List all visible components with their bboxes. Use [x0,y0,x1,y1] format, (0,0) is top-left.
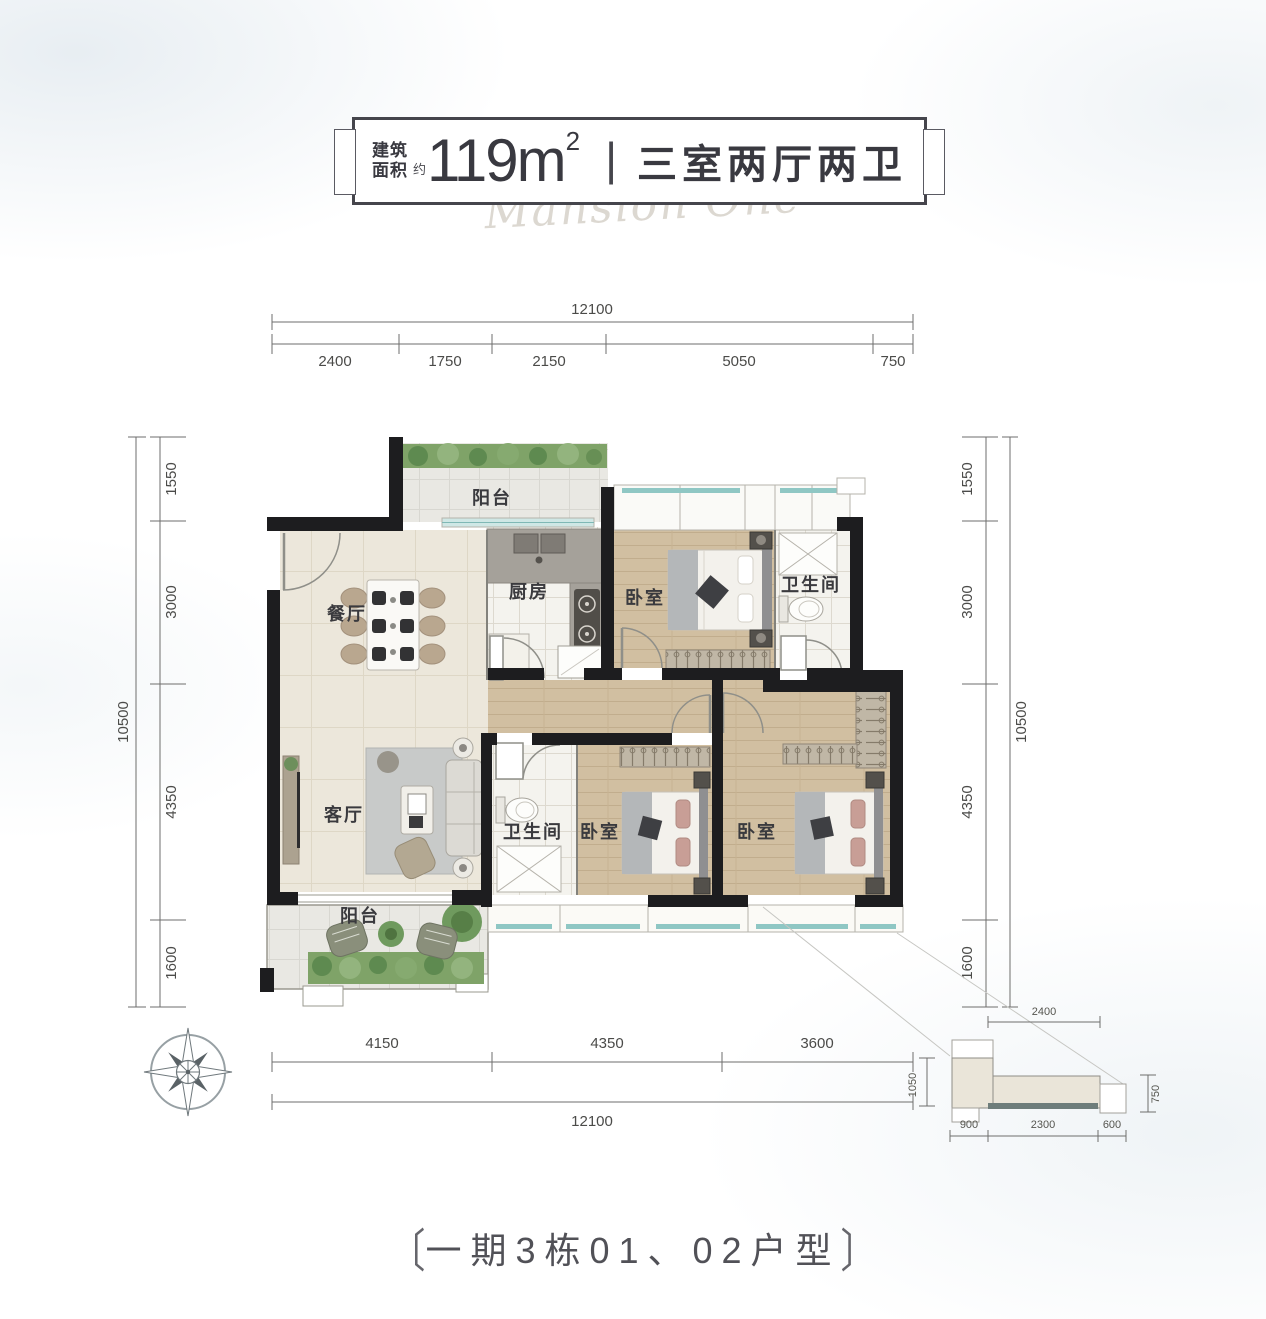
compass-icon [144,1028,232,1116]
wardrobe-icon [856,684,886,768]
dim-right-seg1: 3000 [959,585,976,618]
nightstand-icon [694,772,710,788]
hallway-floor [488,680,712,733]
dim-right-seg2: 4350 [959,785,976,818]
room-label-kitchen: 厨房 [509,581,549,602]
dim-top-total: 12100 [571,301,613,318]
dim-bottom [272,1052,935,1110]
leader-lines [763,907,1126,1086]
title-divider: | [605,132,617,186]
area-exponent: 2 [566,126,580,157]
toilet-icon [496,797,505,823]
room-label-bedroom-mid: 卧室 [580,821,620,842]
wardrobe-icon [783,744,857,764]
bath-door-leaf [781,636,806,670]
area-label: 建筑 面积 [372,141,408,180]
dim-right-seg3: 1600 [959,946,976,979]
window-glass [780,488,842,493]
dim-left-seg3: 1600 [163,946,180,979]
window-glass [860,924,896,929]
area-block: 建筑 面积 约 119m 2 [372,131,579,191]
caption-bracket-right: 〕 [841,1215,877,1282]
detail-slab [952,1058,993,1108]
sofa-icon [446,760,482,856]
dim-left-seg1: 3000 [163,585,180,618]
window-glass [496,924,552,929]
plan-caption: 〔一期3栋01、02户型〕 [0,1222,1266,1274]
dim-left-seg0: 1550 [163,462,180,495]
dim-left [128,437,186,1007]
floorplan-page: 建筑 面积 约 119m 2 | 三室两厅两卫 Mansion One [0,0,1266,1319]
dim-top [272,314,913,354]
room-label-bedroom-top: 卧室 [625,587,665,608]
dim-detail-top: 2400 [1032,1006,1056,1018]
area-label-line2: 面积 [372,161,408,181]
room-label-bedroom-right: 卧室 [737,821,777,842]
dim-detail-right: 750 [1150,1085,1162,1103]
area-label-line1: 建筑 [372,141,408,161]
dim-bottom-seg1: 4350 [590,1035,623,1052]
dim-bottom-seg0: 4150 [365,1035,398,1052]
room-label-balcony-bottom: 阳台 [340,905,380,926]
nightstand-icon [866,878,884,894]
dim-bottom-step: 1050 [907,1073,919,1097]
tv-console-icon [283,756,299,864]
area-value: 119m [427,131,565,191]
dim-detail-b1: 2300 [1031,1119,1055,1131]
room-label-bath-top: 卫生间 [781,574,841,595]
ac-unit-box [303,986,343,1006]
dim-top-seg3: 5050 [722,353,755,370]
dim-right-seg0: 1550 [959,462,976,495]
dim-top-seg2: 2150 [532,353,565,370]
dim-right [962,437,1018,1007]
window-glass [756,924,848,929]
stove-icon [574,589,600,649]
toilet-icon [779,596,788,622]
section-detail: 2400 750 900 2300 600 [950,1006,1162,1142]
caption-bracket-left: 〔 [389,1215,425,1282]
detail-glass-strip [988,1103,1098,1109]
nightstand-icon [694,878,710,894]
banner-right-tab [923,129,945,195]
room-label-dining: 餐厅 [326,603,367,624]
nightstand-icon [866,772,884,788]
dining-set-icon [341,580,445,670]
dim-right-total: 10500 [1013,701,1030,743]
sink-icon [541,534,565,553]
window-glass [566,924,640,929]
room-label-balcony-top: 阳台 [472,487,512,508]
dim-left-total: 10500 [115,701,132,743]
dim-bottom-seg2: 3600 [800,1035,833,1052]
plant-icon [284,757,298,771]
tv-icon [297,772,300,848]
banner-left-tab [334,129,356,195]
window-glass [656,924,740,929]
dim-top-seg4: 750 [880,353,905,370]
pouf-icon [377,751,399,773]
dim-left-seg2: 4350 [163,785,180,818]
wardrobe-icon [620,747,710,767]
layout-spec: 三室两厅两卫 [637,132,907,190]
room-label-living: 客厅 [324,804,364,825]
wardrobe-icon [666,650,770,670]
caption-text: 一期3栋01、02户型 [425,1230,840,1271]
title-content: 建筑 面积 约 119m 2 | 三室两厅两卫 [372,131,907,191]
ac-ledge [837,478,865,494]
approx-mark: 约 [413,159,426,178]
dim-detail-b0: 900 [960,1119,978,1131]
sink-icon [514,534,538,553]
bath-door-leaf [496,743,523,779]
dim-top-seg1: 1750 [428,353,461,370]
dim-bottom-total: 12100 [571,1113,613,1130]
room-label-bath-mid: 卫生间 [503,821,563,842]
dim-detail-b2: 600 [1103,1119,1121,1131]
title-banner: 建筑 面积 约 119m 2 | 三室两厅两卫 [352,117,927,205]
dim-top-seg0: 2400 [318,353,351,370]
window-glass [622,488,740,493]
